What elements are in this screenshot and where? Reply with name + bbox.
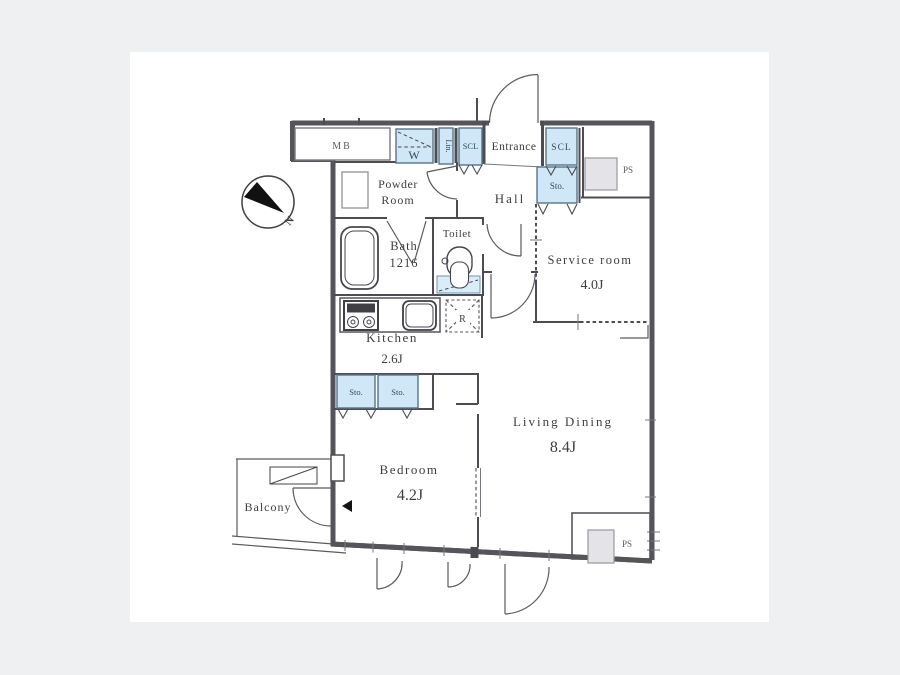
refrigerator-label: R bbox=[459, 314, 466, 325]
entrance-label: Entrance bbox=[492, 141, 537, 153]
scl-hall-label: SCL bbox=[463, 141, 479, 151]
bath-size-label: 1216 bbox=[390, 256, 419, 270]
scl-entrance-label: SCL bbox=[551, 143, 571, 153]
kitchen-label: Kitchen bbox=[366, 330, 418, 345]
powder-room-label-2: Room bbox=[381, 193, 414, 207]
sto-entrance-label: Sto. bbox=[550, 181, 564, 191]
sto-bedroom-right-label: Sto. bbox=[391, 387, 404, 397]
hall-label: Hall bbox=[495, 191, 525, 206]
kitchen-area: 2.6J bbox=[381, 351, 402, 366]
bedroom-label: Bedroom bbox=[380, 462, 439, 477]
service-room-label: Service room bbox=[548, 253, 633, 267]
balcony-label: Balcony bbox=[245, 500, 292, 514]
floor-plan-page: MB W Lin. SCL Entrance SCL Sto. PS Powde… bbox=[0, 0, 900, 675]
kitchen-counter bbox=[340, 298, 440, 332]
living-dining-label: Living Dining bbox=[513, 414, 613, 429]
powder-room-label-1: Powder bbox=[378, 177, 418, 191]
living-dining-area: 8.4J bbox=[550, 439, 576, 456]
linen-label: Lin. bbox=[444, 139, 453, 152]
stove bbox=[344, 301, 378, 330]
bath-label: Bath bbox=[390, 239, 418, 253]
bathtub bbox=[341, 227, 378, 289]
window-mullion bbox=[471, 547, 479, 558]
wall-pillar bbox=[331, 455, 344, 481]
toilet-label: Toilet bbox=[443, 228, 472, 240]
pipe-shaft-top bbox=[585, 158, 617, 190]
service-room-area: 4.0J bbox=[581, 278, 605, 293]
floor-plan-drawing: MB W Lin. SCL Entrance SCL Sto. PS Powde… bbox=[0, 0, 900, 675]
bedroom-area: 4.2J bbox=[397, 487, 423, 504]
pipe-shaft-top-label: PS bbox=[623, 165, 633, 175]
kitchen-sink bbox=[403, 301, 436, 330]
pipe-shaft-bottom-label: PS bbox=[622, 539, 632, 549]
meter-box-label: MB bbox=[332, 141, 352, 152]
utility-shaft bbox=[342, 172, 368, 208]
washer-label: W bbox=[408, 148, 420, 162]
sto-bedroom-left-label: Sto. bbox=[349, 387, 362, 397]
